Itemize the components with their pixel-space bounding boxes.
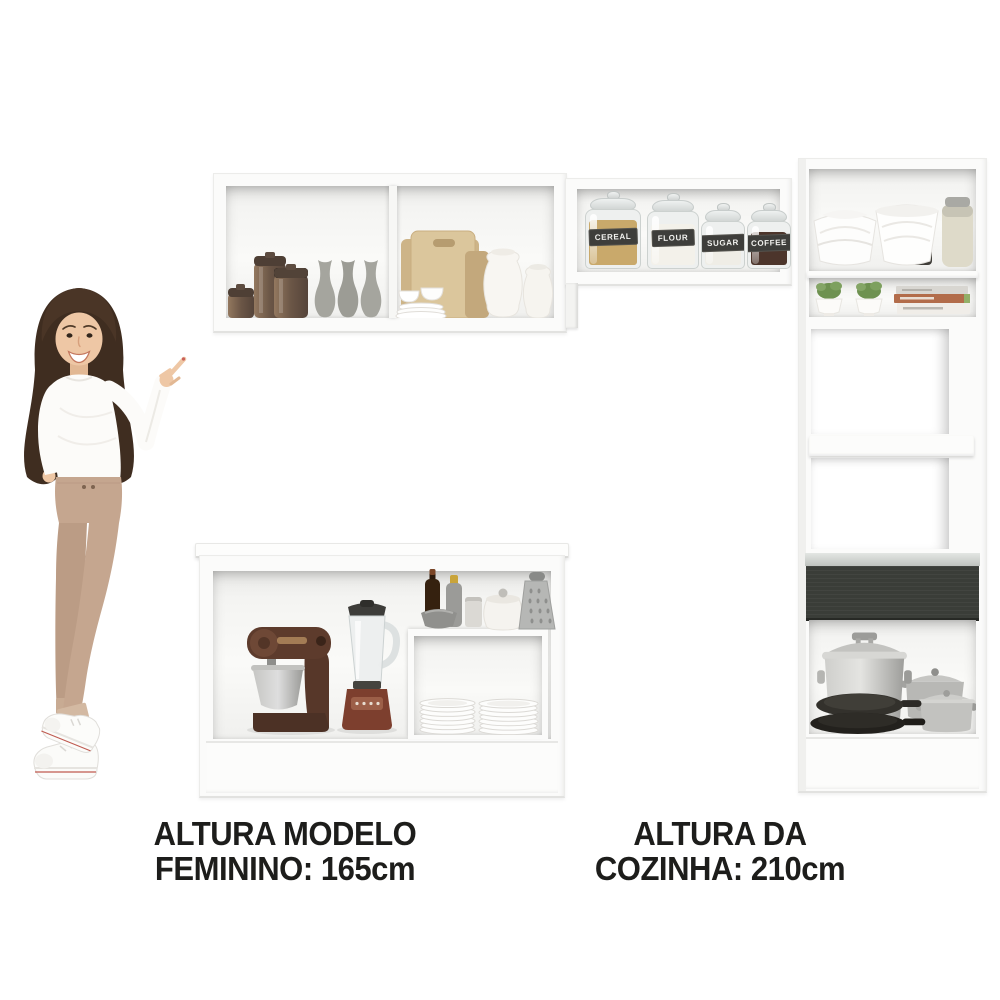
pantry-jar-coffee: COFFEE xyxy=(747,203,791,269)
caption-model-height: ALTURA MODELO FEMININO: 165cm xyxy=(130,816,440,886)
pantry-jar-flour: FLOUR xyxy=(647,193,699,269)
caption-kitchen-height-line1: ALTURA DA xyxy=(570,816,871,851)
cutting-boards-cups-jugs xyxy=(395,229,553,318)
jar-label: FLOUR xyxy=(651,229,694,247)
jar-label: CEREAL xyxy=(588,227,637,246)
counter-inner-shelf-box xyxy=(408,629,548,739)
tall-cabinet-shelf-top xyxy=(809,169,976,271)
stand-mixer xyxy=(241,611,337,736)
plate-stacks xyxy=(414,683,542,735)
wall-cabinet-middle: CEREAL FLOUR SUGAR xyxy=(565,178,792,286)
tall-cabinet-counter-strip xyxy=(805,553,980,566)
tall-cabinet-shelf-plants xyxy=(809,278,976,317)
white-bowls-and-jar xyxy=(810,175,975,270)
tall-cabinet-shelf-pots xyxy=(809,620,976,734)
wall-cabinet-left xyxy=(213,173,567,333)
oven-cavity-lower xyxy=(811,458,949,549)
tall-cabinet-side-panel xyxy=(799,159,806,791)
tall-cabinet xyxy=(798,158,987,793)
tall-cabinet-bottom-drawer xyxy=(806,737,979,789)
caption-model-height-line2: FEMININO: 165cm xyxy=(130,851,440,886)
kitchen-product-image: CEREAL FLOUR SUGAR xyxy=(0,0,1000,1000)
wall-cabinet-middle-side-panel xyxy=(566,283,578,328)
plant-pots-and-books xyxy=(810,273,975,317)
pantry-jar-sugar: SUGAR xyxy=(701,203,745,269)
female-model-illustration xyxy=(0,278,230,800)
bottles-teapot-grater xyxy=(419,569,559,633)
counter-cabinet xyxy=(199,555,565,798)
oven-cavity-upper xyxy=(811,329,949,434)
counter-cabinet-interior xyxy=(213,571,551,739)
counter-cabinet-drawer xyxy=(206,741,558,793)
blender xyxy=(331,599,403,735)
counter-inner-shelf-interior xyxy=(414,636,542,735)
pots-and-pans xyxy=(809,620,976,734)
bronze-canisters-and-vases xyxy=(228,251,388,318)
pantry-jar-cereal: CEREAL xyxy=(585,191,641,269)
jar-label: COFFEE xyxy=(747,234,791,253)
wall-cabinet-middle-interior: CEREAL FLOUR SUGAR xyxy=(577,189,780,272)
oven-cavity-shelf xyxy=(809,436,974,456)
jar-label: SUGAR xyxy=(701,234,745,253)
caption-model-height-line1: ALTURA MODELO xyxy=(130,816,440,851)
caption-kitchen-height-line2: COZINHA: 210cm xyxy=(570,851,871,886)
caption-kitchen-height: ALTURA DA COZINHA: 210cm xyxy=(570,816,871,886)
tall-cabinet-dark-drawer xyxy=(806,566,979,621)
